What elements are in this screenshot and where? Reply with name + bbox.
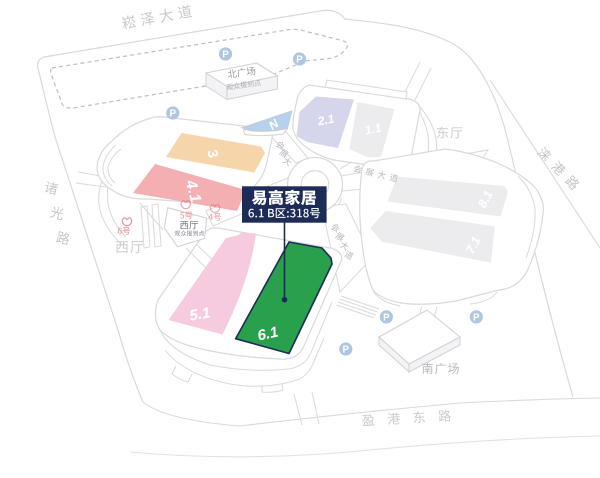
svg-text:P: P [222,49,229,60]
svg-text:P: P [170,108,177,119]
svg-text:P: P [383,312,390,323]
svg-text:5.1: 5.1 [188,304,211,324]
svg-text:P: P [296,54,303,65]
svg-text:P: P [343,344,350,355]
svg-text:P: P [473,312,480,323]
